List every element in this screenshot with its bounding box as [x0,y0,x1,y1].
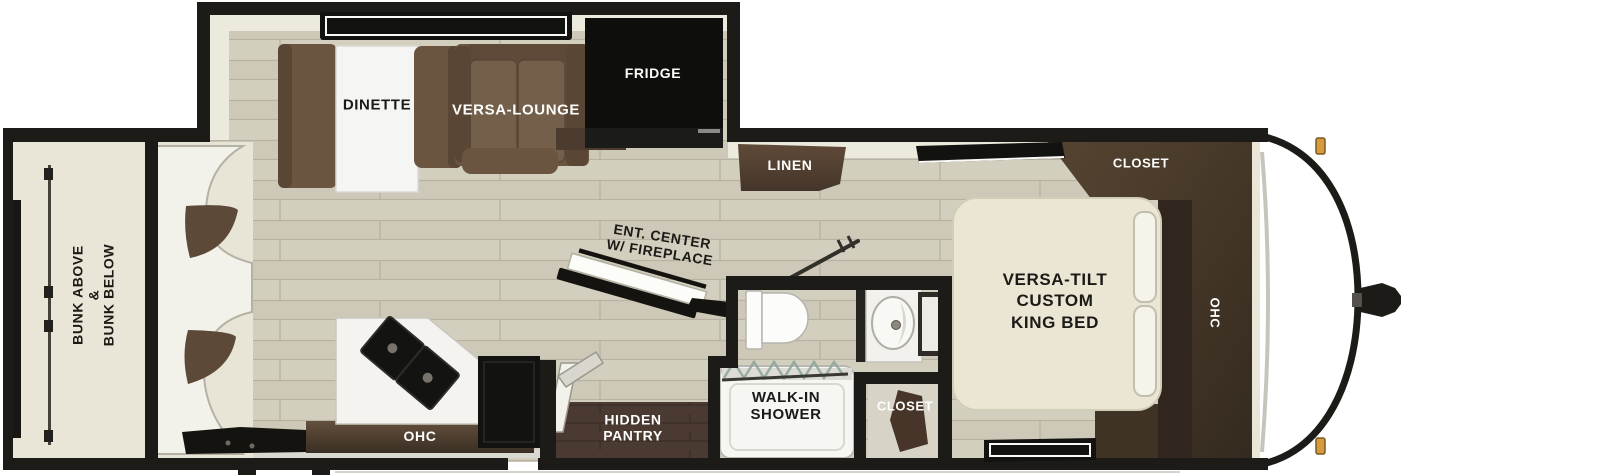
dinette-table [336,46,418,192]
versa-lounge-label: VERSA-LOUNGE [452,103,580,120]
linen-label: LINEN [768,158,813,174]
hitch [1356,283,1401,317]
bed-foot-cabinet [1095,404,1158,458]
clearance-light [1316,438,1325,454]
bedroom-ohc-label: OHC [1207,298,1222,329]
bath-closet [868,384,938,458]
bath-closet-label: CLOSET [877,400,933,415]
bunk-label: BUNK ABOVE & BUNK BELOW [70,244,117,346]
clearance-light [1316,138,1325,154]
hidden-pantry-label: HIDDEN PANTRY [603,412,663,443]
bathroom-sink [866,288,922,362]
dinette-label: DINETTE [343,98,411,115]
stove [478,356,540,448]
pantry-wall [540,360,556,470]
pillow [1134,306,1156,396]
stabilizer-jack [312,470,330,475]
bedroom-bottom-window [984,438,1096,462]
kitchen-ohc-label: OHC [404,429,437,445]
king-bed-label: VERSA-TILT CUSTOM KING BED [1003,269,1108,333]
slide-left-band [209,14,229,140]
floorplan: BUNK ABOVE & BUNK BELOW DINETTE VERSA-LO… [0,0,1600,476]
bedroom-closet-label: CLOSET [1113,157,1169,172]
rear-wardrobe [157,142,253,458]
stabilizer-jack [238,470,256,475]
fridge-label: FRIDGE [625,66,682,82]
pillow [1134,212,1156,302]
walk-in-shower-label: WALK-IN SHOWER [750,390,821,424]
rear-console [182,427,308,454]
